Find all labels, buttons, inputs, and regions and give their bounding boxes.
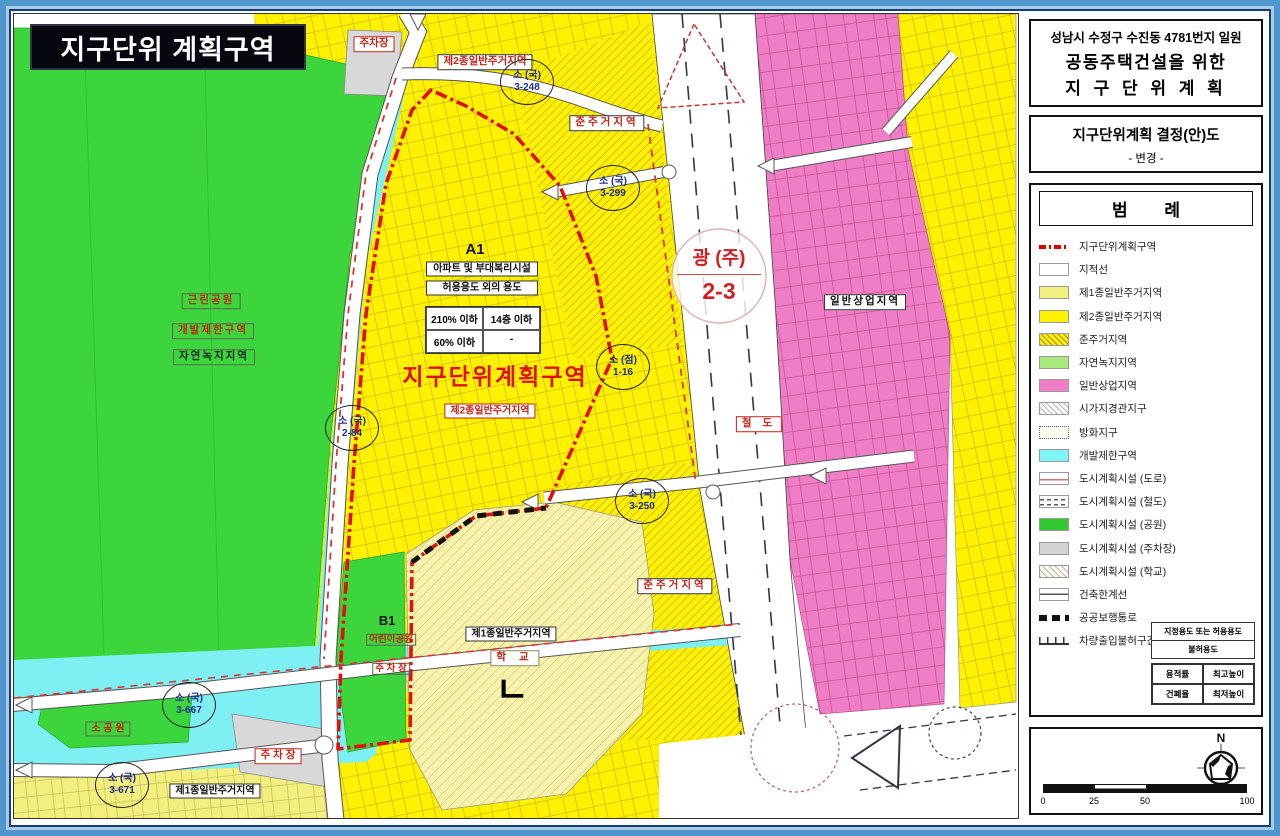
a1-far-value: 210% 이하 (426, 307, 483, 330)
road-marker-3-671: 소 (국)3-671 (95, 762, 149, 808)
cadastral-line-swatch (1039, 263, 1069, 276)
facility-park-swatch (1039, 518, 1069, 531)
label-semi-res-top: 준주거지역 (569, 115, 644, 131)
label-zone1-bottom: 제1종일반주거지역 (169, 784, 260, 799)
road-marker-2-84: 소 (국)2-84 (325, 405, 379, 451)
legend-item-district-boundary: 지구단위계획구역 (1039, 235, 1253, 258)
plan-location: 성남시 수정구 수진동 4781번지 일원 (1033, 27, 1259, 46)
facility-school-swatch (1039, 565, 1069, 578)
fire-district-swatch (1039, 426, 1069, 439)
legend-items: 지구단위계획구역 지적선 제1종일반주거지역 제2종일반주거지역 준주거지역 자… (1039, 235, 1253, 652)
north-label: N (1217, 731, 1226, 745)
greenbelt-swatch (1039, 449, 1069, 462)
scale-segment-1 (1044, 785, 1095, 792)
label-semi-res-bottom: 준주거지역 (637, 578, 712, 594)
legend-item-commercial: 일반상업지역 (1039, 374, 1253, 397)
road-marker-1-16: 소 (점)1-16 (596, 344, 650, 390)
scale-labels: 0 25 50 100 (1043, 796, 1247, 808)
semi-residential-swatch (1039, 333, 1069, 346)
label-childrens-park: 어린이공원 (366, 634, 416, 646)
legend-box: 범 례 지구단위계획구역 지적선 제1종일반주거지역 제2종일반주거지역 준주거… (1029, 183, 1263, 717)
legend-item-residential-2: 제2종일반주거지역 (1039, 305, 1253, 328)
legend-item-facility-park: 도시계획시설 (공원) (1039, 513, 1253, 536)
legend-item-cadastral-line: 지적선 (1039, 258, 1253, 281)
label-small-park: 소 공 원 (85, 722, 130, 737)
facility-parking-swatch (1039, 542, 1069, 555)
legend-item-facility-parking: 도시계획시설 (주차장) (1039, 536, 1253, 559)
label-parking-bottom: 주 차 장 (255, 748, 302, 764)
road-marker-3-248: 소 (국)3-248 (500, 59, 554, 105)
use-table-allowed: 지정용도 또는 허용용도 (1152, 623, 1254, 640)
label-district-title: 지구단위계획구역 (402, 364, 587, 389)
legend-item-semi-residential: 준주거지역 (1039, 328, 1253, 351)
drawing-title: 지구단위계획 결정(안)도 (1033, 124, 1259, 145)
road-marker-3-667: 소 (국)3-667 (162, 682, 216, 728)
legend-item-facility-road: 도시계획시설 (도로) (1039, 467, 1253, 490)
school-symbol: ㄴ (495, 670, 528, 710)
no-vehicle-access-swatch (1039, 637, 1069, 645)
drawing-revision: - 변경 - (1033, 150, 1259, 166)
road-marker-3-299: 소 (국)3-299 (586, 165, 640, 211)
plan-sheet: 지구단위 계획구역 주차장 제2종일반주거지역 준주거지역 A1 아파트 및 부… (9, 9, 1271, 827)
label-neighborhood-park: 근린공원 (182, 293, 241, 309)
label-parking-b1: 주 차 장 (372, 663, 410, 675)
commercial-swatch (1039, 379, 1069, 392)
ratio-far: 용적률 (1152, 664, 1203, 684)
road-marker-3-250: 소 (국)3-250 (615, 478, 669, 524)
road-marker-gwangju-2-3: 광 (주) 2-3 (671, 228, 767, 324)
label-b1: B1 (379, 614, 396, 628)
label-zone1-school: 제1종일반주거지역 (465, 627, 556, 642)
compass-scale-box: N 0 25 50 100 (1029, 727, 1263, 815)
legend-item-cityscape: 시가지경관지구 (1039, 397, 1253, 420)
residential-1-swatch (1039, 286, 1069, 299)
ratio-min-height: 최저높이 (1203, 684, 1254, 704)
junction-circle-1 (662, 165, 676, 179)
label-a1-use: 아파트 및 부대복리시설 (426, 262, 538, 277)
junction-circle-3 (315, 736, 333, 754)
label-parking-top: 주차장 (354, 36, 395, 52)
legend-item-nature-green: 자연녹지지역 (1039, 351, 1253, 374)
plan-purpose: 공동주택건설을 위한 (1033, 48, 1259, 73)
legend-item-facility-school: 도시계획시설 (학교) (1039, 560, 1253, 583)
pedestrian-path-swatch (1039, 615, 1069, 621)
label-commercial: 일반상업지역 (824, 294, 906, 310)
plan-title-box: 성남시 수정구 수진동 4781번지 일원 공동주택건설을 위한 지 구 단 위… (1029, 19, 1263, 107)
nature-green-swatch (1039, 356, 1069, 369)
legend-item-building-limit: 건축한계선 (1039, 583, 1253, 606)
zoning-map: 지구단위 계획구역 주차장 제2종일반주거지역 준주거지역 A1 아파트 및 부… (13, 13, 1019, 819)
scale-segment-3 (1146, 785, 1246, 792)
residential-2-swatch (1039, 310, 1069, 323)
facility-rail-swatch (1039, 495, 1069, 508)
label-zone2-mid: 제2종일반주거지역 (444, 404, 535, 419)
label-railway: 철 도 (736, 416, 782, 432)
scale-segment-2 (1095, 785, 1146, 792)
ratio-max-height: 최고높이 (1203, 664, 1254, 684)
legend-item-residential-1: 제1종일반주거지역 (1039, 281, 1253, 304)
legend-item-facility-rail: 도시계획시설 (철도) (1039, 490, 1253, 513)
scale-bar (1043, 784, 1247, 793)
legend-use-table: 지정용도 또는 허용용도 불허용도 (1151, 622, 1255, 659)
use-table-prohibited: 불허용도 (1152, 640, 1254, 658)
cityscape-swatch (1039, 402, 1069, 415)
label-a1: A1 (465, 242, 484, 259)
district-boundary-swatch (1039, 245, 1069, 249)
screen: 지구단위 계획구역 주차장 제2종일반주거지역 준주거지역 A1 아파트 및 부… (0, 0, 1280, 836)
ratio-bcr: 건폐율 (1152, 684, 1203, 704)
label-school: 학 교 (490, 650, 539, 666)
junction-circle-2 (706, 485, 720, 499)
plan-type: 지 구 단 위 계 획 (1033, 74, 1259, 99)
legend-item-fire-district: 방화지구 (1039, 421, 1253, 444)
legend-header: 범 례 (1039, 191, 1253, 226)
a1-dash-value: - (483, 330, 540, 353)
legend-item-greenbelt: 개발제한구역 (1039, 444, 1253, 467)
scale-tick-50: 50 (1140, 796, 1150, 806)
label-nature-green: 자연녹지지역 (173, 349, 255, 365)
drawing-title-box: 지구단위계획 결정(안)도 - 변경 - (1029, 115, 1263, 173)
info-panel: 성남시 수정구 수진동 4781번지 일원 공동주택건설을 위한 지 구 단 위… (1023, 13, 1269, 819)
a1-ratio-table: 210% 이하 14층 이하 60% 이하 - (425, 306, 541, 354)
label-greenbelt: 개발제한구역 (172, 323, 254, 339)
building-limit-swatch (1039, 588, 1069, 601)
map-overlay-title: 지구단위 계획구역 (30, 24, 306, 70)
scale-tick-25: 25 (1089, 796, 1099, 806)
scale-tick-100: 100 (1239, 796, 1254, 806)
label-a1-prohibited: 허용용도 외의 용도 (426, 281, 538, 296)
scale-tick-0: 0 (1040, 796, 1045, 806)
a1-bcr-value: 60% 이하 (426, 330, 483, 353)
facility-road-swatch (1039, 472, 1069, 485)
legend-ratio-table: 용적률 최고높이 건폐율 최저높이 (1151, 663, 1255, 705)
a1-floor-value: 14층 이하 (483, 307, 540, 330)
